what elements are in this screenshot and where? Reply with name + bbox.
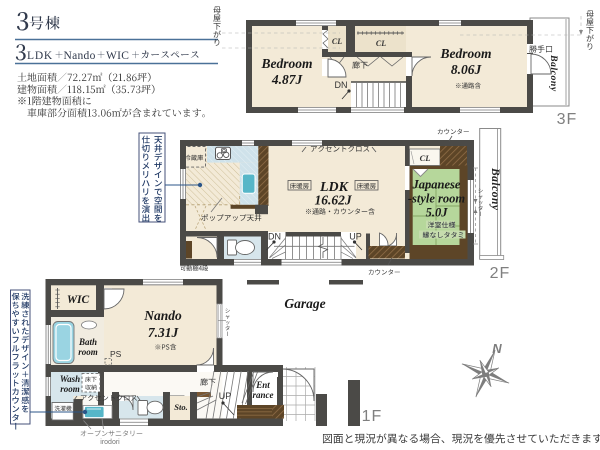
svg-text:Bedroom: Bedroom [439,46,491,61]
svg-text:8.06J: 8.06J [451,62,483,77]
svg-text:LDK: LDK [27,50,53,62]
svg-text:Nando: Nando [143,308,182,323]
svg-text:rance: rance [253,390,274,400]
svg-text:Garage: Garage [284,296,325,311]
svg-text:UP: UP [219,391,232,401]
svg-text:4.87J: 4.87J [271,72,304,87]
svg-text:3F: 3F [557,111,578,128]
svg-text:CL: CL [420,153,431,163]
svg-text:room: room [60,384,80,394]
svg-text:N: N [492,341,502,356]
svg-text:5.0J: 5.0J [426,206,449,220]
svg-text:7.31J: 7.31J [148,325,180,340]
svg-text:WIC: WIC [106,50,129,62]
svg-text:DN: DN [268,232,281,242]
svg-text:Japanese: Japanese [412,178,461,192]
svg-text:Ent: Ent [255,380,270,390]
svg-text:-style room: -style room [408,192,466,206]
svg-text:UP: UP [349,232,362,242]
svg-text:16.62J: 16.62J [314,193,352,208]
svg-text:1F: 1F [362,408,383,425]
svg-text:Bedroom: Bedroom [260,56,312,71]
svg-text:Sto.: Sto. [174,402,187,412]
svg-text:Nando: Nando [64,50,96,62]
svg-text:Balcony: Balcony [489,167,501,211]
svg-text:PS: PS [110,349,122,359]
svg-text:irodori: irodori [100,439,120,446]
svg-text:Bath: Bath [78,337,97,347]
svg-text:2F: 2F [490,265,511,282]
svg-text:DN: DN [335,80,348,90]
svg-text:WIC: WIC [67,294,90,306]
svg-text:CL: CL [376,39,386,48]
svg-text:CL: CL [332,37,342,46]
svg-text:room: room [78,347,98,357]
svg-text:Wash: Wash [60,374,80,384]
